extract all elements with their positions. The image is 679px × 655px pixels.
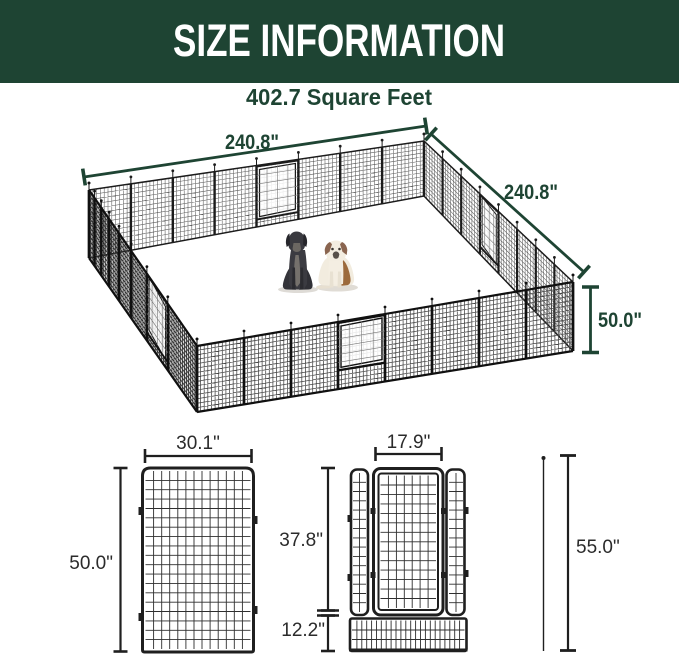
svg-text:402.7 Square Feet: 402.7 Square Feet: [246, 84, 432, 110]
svg-text:SIZE INFORMATION: SIZE INFORMATION: [173, 15, 505, 66]
svg-text:37.8": 37.8": [279, 530, 323, 551]
svg-text:50.0": 50.0": [69, 553, 113, 574]
svg-text:50.0": 50.0": [598, 309, 642, 332]
svg-text:17.9": 17.9": [387, 432, 431, 453]
svg-text:55.0": 55.0": [576, 537, 620, 558]
svg-text:240.8": 240.8": [225, 131, 279, 154]
svg-text:30.1": 30.1": [176, 433, 220, 454]
svg-text:12.2": 12.2": [281, 620, 325, 641]
svg-text:240.8": 240.8": [504, 181, 558, 204]
